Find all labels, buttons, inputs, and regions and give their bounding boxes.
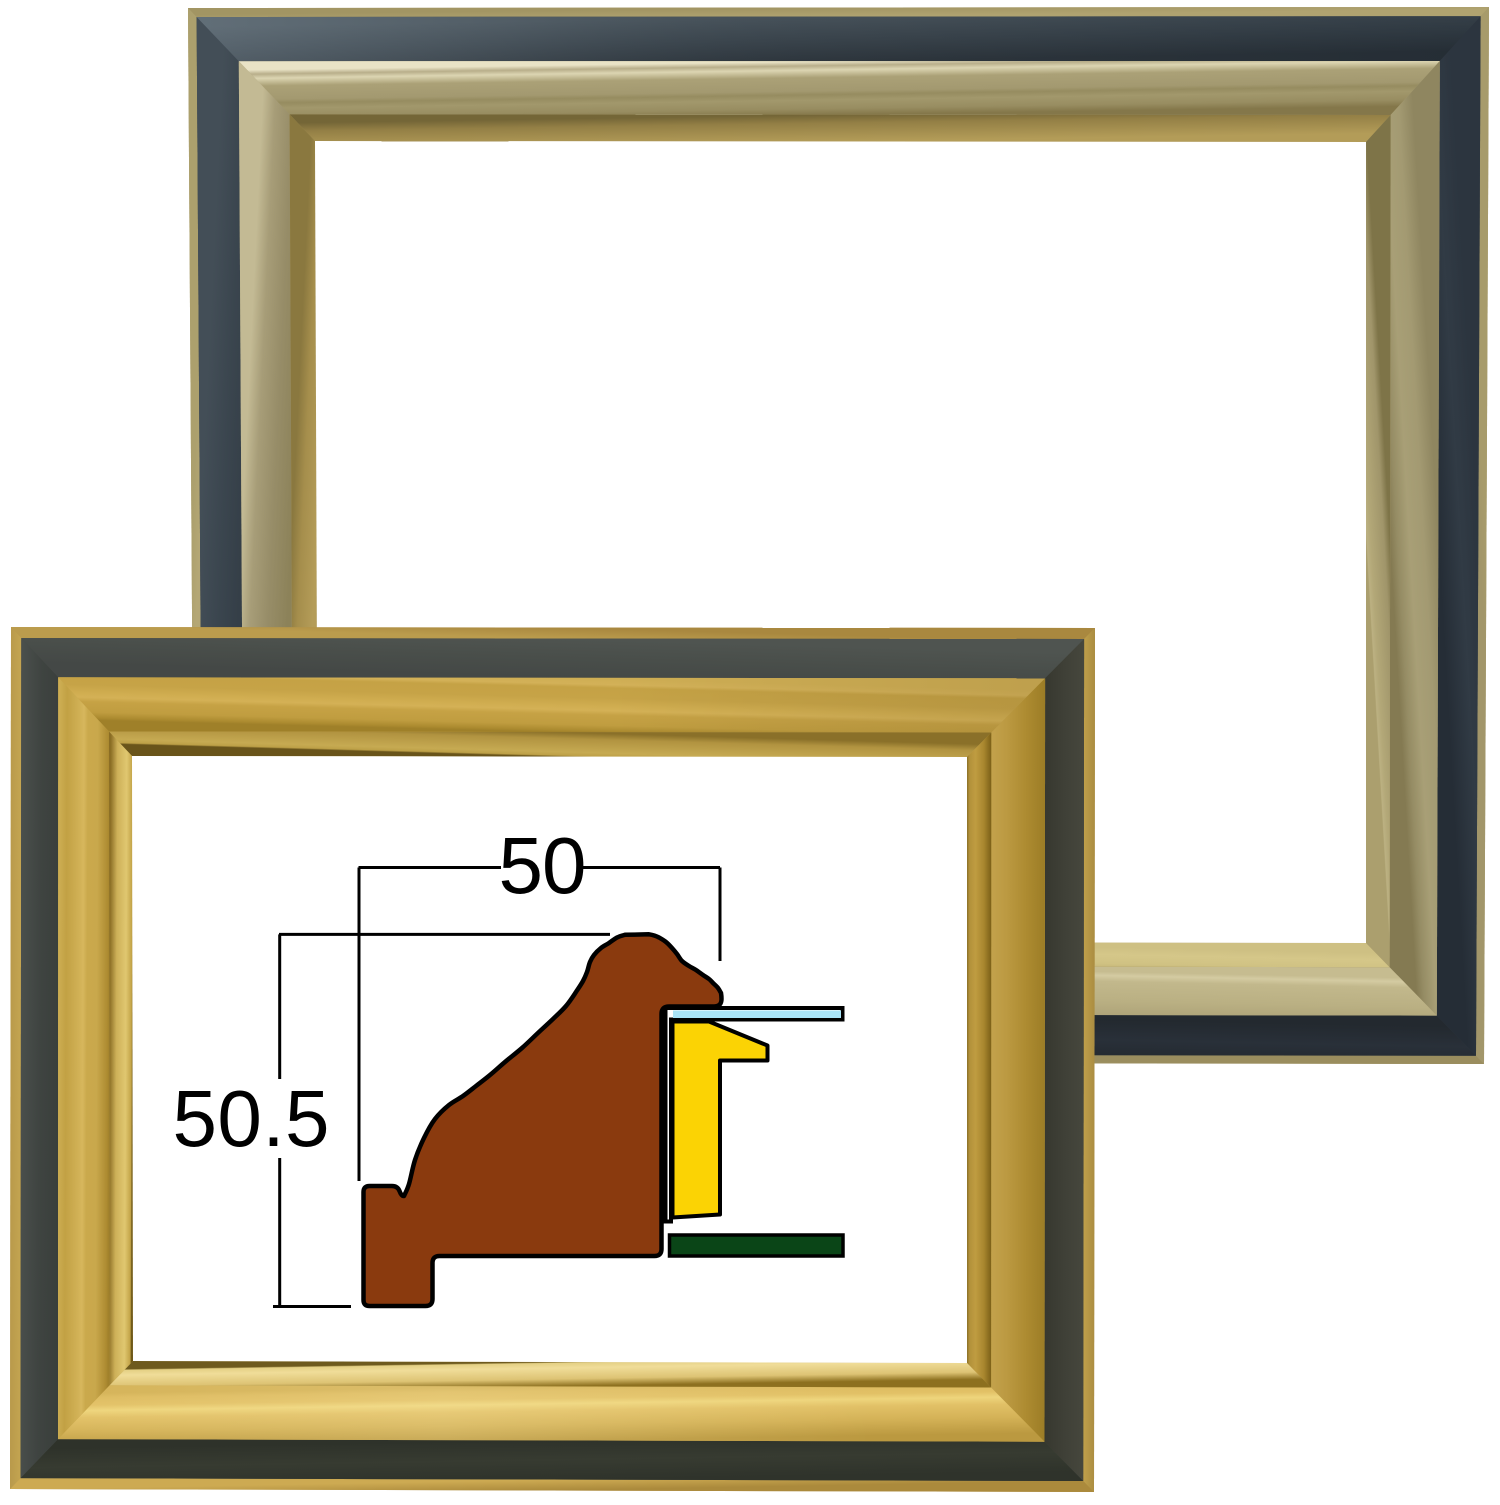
svg-text:50.5: 50.5 bbox=[173, 1074, 330, 1163]
svg-text:50: 50 bbox=[499, 821, 587, 910]
